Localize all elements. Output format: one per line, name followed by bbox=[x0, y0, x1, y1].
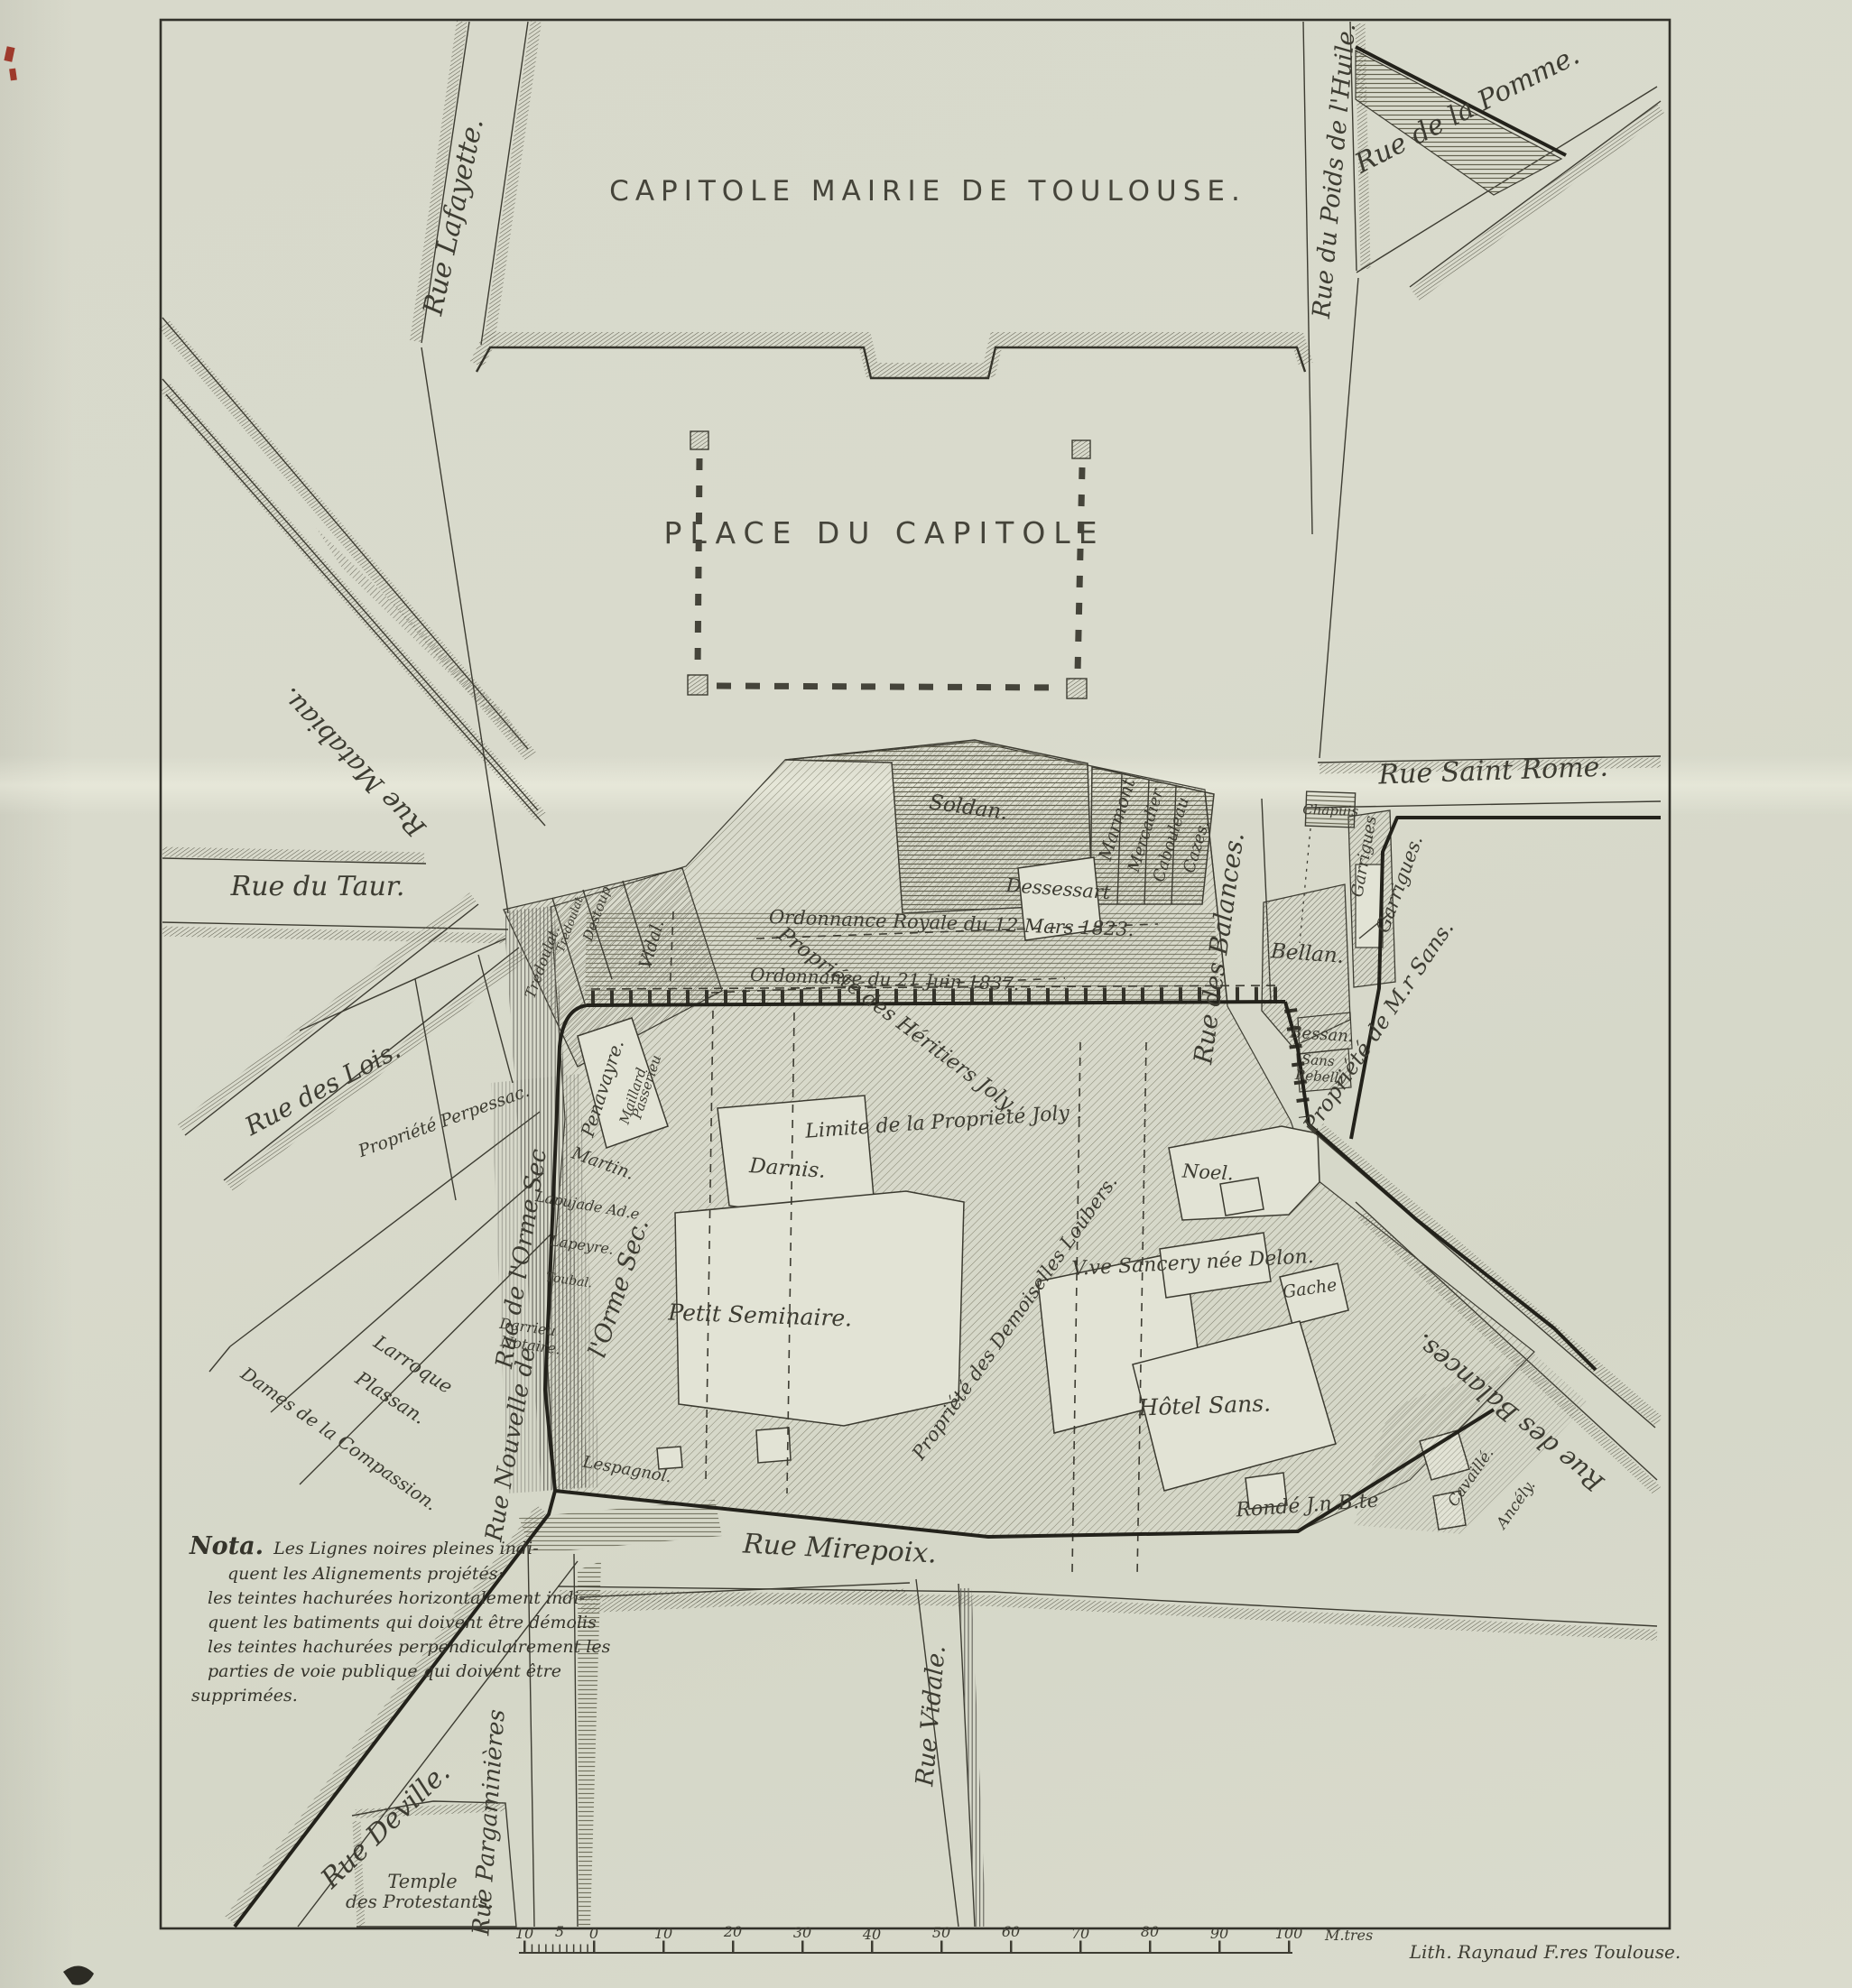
scale-num-4: 20 bbox=[723, 1923, 742, 1940]
nota-legend: Nota. Les Lignes noires pleines indi- qu… bbox=[189, 1532, 611, 1706]
capitole-title: CAPITOLE MAIRIE DE TOULOUSE. bbox=[609, 175, 1246, 208]
place-du-capitole-label: PLACE DU CAPITOLE bbox=[663, 515, 1105, 550]
place-du-capitole-boundary bbox=[688, 431, 1090, 698]
ink-blot bbox=[63, 1965, 94, 1984]
scale-num-10: 80 bbox=[1141, 1923, 1159, 1940]
noel-label: Noel. bbox=[1181, 1160, 1234, 1184]
scale-num-6: 40 bbox=[862, 1926, 881, 1943]
nota-line-3: les teintes hachurées horizontalement in… bbox=[208, 1588, 585, 1608]
scale-num-9: 70 bbox=[1071, 1925, 1089, 1942]
chapuis-label: Chapuis bbox=[1302, 801, 1359, 819]
scale-num-7: 50 bbox=[932, 1924, 950, 1941]
rue-vidale-label: Rue Vidale. bbox=[911, 1644, 951, 1789]
scale-num-2: 0 bbox=[589, 1925, 598, 1942]
scale-num-0: 10 bbox=[515, 1925, 533, 1942]
scale-num-12: 100 bbox=[1275, 1925, 1303, 1942]
scale-num-3: 10 bbox=[654, 1925, 672, 1942]
map-sheet: CAPITOLE MAIRIE DE TOULOUSE. PLACE DU CA… bbox=[0, 0, 1852, 1988]
temple-label-1: Temple bbox=[387, 1871, 457, 1892]
scale-num-11: 90 bbox=[1210, 1925, 1228, 1942]
rue-saint-rome-label: Rue Saint Rome. bbox=[1377, 752, 1609, 791]
nota-line-2: quent les Alignements projétés: bbox=[227, 1564, 504, 1584]
rue-mirepoix-label: Rue Mirepoix. bbox=[741, 1528, 937, 1569]
scale-num-1: 5 bbox=[555, 1923, 564, 1940]
rue-des-lois-label: Rue des Lois. bbox=[239, 1034, 405, 1142]
rue-poids-huile-label: Rue du Poids de l'Huile. bbox=[1308, 23, 1362, 320]
toulouse-alignment-map: CAPITOLE MAIRIE DE TOULOUSE. PLACE DU CA… bbox=[0, 0, 1852, 1988]
nota-line-4: quent les batiments qui doivent être dém… bbox=[208, 1613, 597, 1632]
scale-num-5: 30 bbox=[793, 1924, 811, 1941]
rue-du-taur-label: Rue du Taur. bbox=[230, 871, 405, 902]
compassion-label: Dames de la Compassion. bbox=[236, 1362, 442, 1515]
scale-unit-label: M.tres bbox=[1324, 1927, 1373, 1944]
nota-line-5: les teintes hachurées perpendiculairemen… bbox=[208, 1637, 611, 1657]
nota-heading: Nota. bbox=[189, 1532, 264, 1560]
nota-line-6: parties de voie publique qui doivent êtr… bbox=[208, 1661, 561, 1681]
scale-num-8: 60 bbox=[1002, 1923, 1020, 1940]
nota-line-7: supprimées. bbox=[191, 1686, 298, 1706]
rue-matabiau-label: Rue Matabiau. bbox=[274, 682, 432, 845]
lithographer-credit: Lith. Raynaud F.res Toulouse. bbox=[1409, 1941, 1681, 1963]
nota-line-1: Les Lignes noires pleines indi- bbox=[273, 1539, 538, 1558]
hotel-sans-label: Hôtel Sans. bbox=[1137, 1390, 1271, 1420]
temple-label-2: des Protestants. bbox=[346, 1891, 494, 1912]
